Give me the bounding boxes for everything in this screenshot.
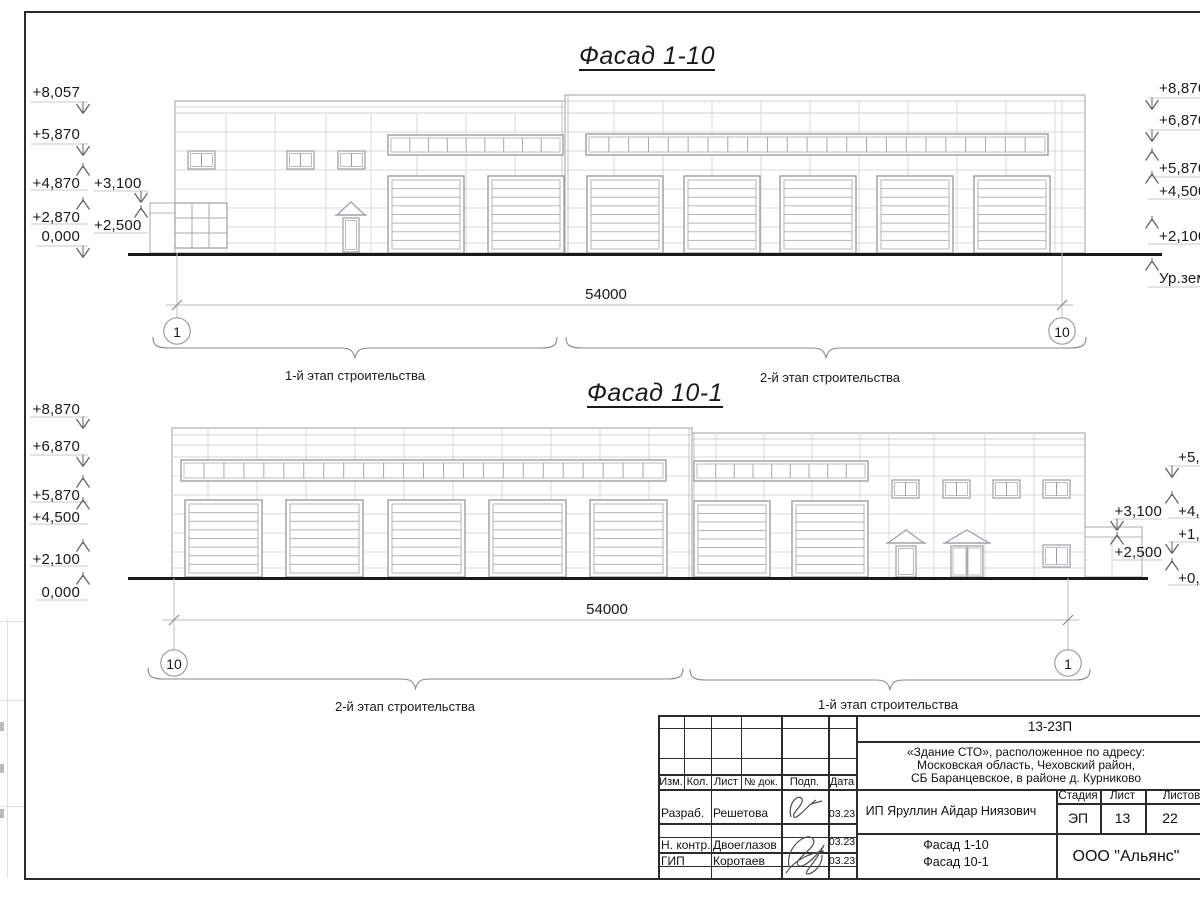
facade2-stage2-label: 2-й этап строительства [305,699,505,714]
facade2-stage1-label: 1-й этап строительства [788,697,988,712]
signature-marks [783,791,827,877]
elevation-label: +4,870 [1178,504,1200,520]
client-name: ИП Яруллин Айдар Ниязович [856,804,1046,818]
margin-strip-mark [0,764,4,773]
elevation-label: +5,870 [1178,450,1200,466]
elevation-label: +8,057 [0,85,80,101]
elevation-label: +1,870 [1178,527,1200,543]
row-role: Разраб. [661,806,704,820]
facade2-title: Фасад 10-1 [545,379,765,408]
facade2-axis-bubble-label-10: 10 [159,656,189,672]
elevation-label: 0,000 [0,229,80,245]
elevation-label: +3,100 [94,176,142,192]
margin-strip-line [0,806,24,807]
facade-10-1-drawing [128,428,1148,690]
row-date: 03.23 [828,808,856,820]
elevation-label: +5,870 [0,488,80,504]
elevation-label: 0,000 [0,585,80,601]
margin-strip-mark [0,722,4,731]
elevation-label: +8,870 [1159,81,1200,97]
facade1-stage1-label: 1-й этап строительства [255,368,455,383]
col-podp: Подп. [781,776,828,788]
col-izm: Изм. [658,776,684,788]
row-name: Двоеглазов [713,838,777,852]
object-address-line: «Здание СТО», расположенное по адресу: [856,745,1196,759]
frame-bottom [24,878,1200,880]
object-address-line: Московская область, Чеховский район, [856,758,1196,772]
margin-strip-line [7,618,8,878]
frame-top [24,11,1200,13]
facade1-dimension-label: 54000 [556,286,656,303]
elevation-label: +0,870 [1178,571,1200,587]
object-address-line: СБ Баранцевское, в районе д. Курниково [856,771,1196,785]
stamp-drawing-title-1: Фасад 1-10 [851,838,1061,852]
col-data: Дата [828,776,856,788]
elevation-label: +2,100 [0,552,80,568]
col-doc: № док. [741,776,781,788]
margin-strip-mark [0,809,4,818]
stamp-drawing-title-2: Фасад 10-1 [851,855,1061,869]
elevation-label: +4,500 [0,510,80,526]
elevation-label: +3,100 [1052,504,1162,520]
facade1-title: Фасад 1-10 [537,42,757,71]
facade1-axis-bubble-label-10: 10 [1047,324,1077,340]
elevation-label: +2,100 [1159,229,1200,245]
company-name: ООО "Альянс" [1056,848,1196,866]
col-list: Лист [711,776,741,788]
facade2-dimension-label: 54000 [557,601,657,618]
elevation-label: +2,500 [94,218,142,234]
margin-strip-line [0,700,24,701]
stage-label: Стадия [1056,790,1100,802]
sheet-label: Лист [1100,790,1145,802]
facade2-axis-bubble-label-1: 1 [1053,656,1083,672]
row-name: Решетова [713,806,768,820]
elevation-label: +2,500 [1052,545,1162,561]
sheet-number: 13 [1100,810,1145,826]
elevation-label: +2,870 [0,210,80,226]
col-kol: Кол. [684,776,711,788]
row-role: Н. контр. [661,838,711,852]
elevation-label: Ур.земли [1159,271,1200,287]
facade-1-10-drawing [128,95,1162,358]
row-name: Коротаев [713,854,765,868]
sheets-total: 22 [1145,810,1195,826]
elevation-label: +5,870 [1159,161,1200,177]
elevation-label: +6,870 [0,439,80,455]
drawing-sheet: Фасад 1-10 54000 1 10 1-й этап строитель… [0,0,1200,900]
row-role: ГИП [661,854,685,868]
margin-strip-line [0,621,24,622]
elevation-label: +4,500 [1159,184,1200,200]
elevation-label: +8,870 [0,402,80,418]
facade1-axis-bubble-label-1: 1 [162,324,192,340]
elevation-label: +4,870 [0,176,80,192]
elevation-label: +6,870 [1159,113,1200,129]
elevation-label: +5,870 [0,127,80,143]
sheets-label: Листов [1145,790,1200,802]
doc-code: 13-23П [900,719,1200,734]
stage-value: ЭП [1056,810,1100,826]
